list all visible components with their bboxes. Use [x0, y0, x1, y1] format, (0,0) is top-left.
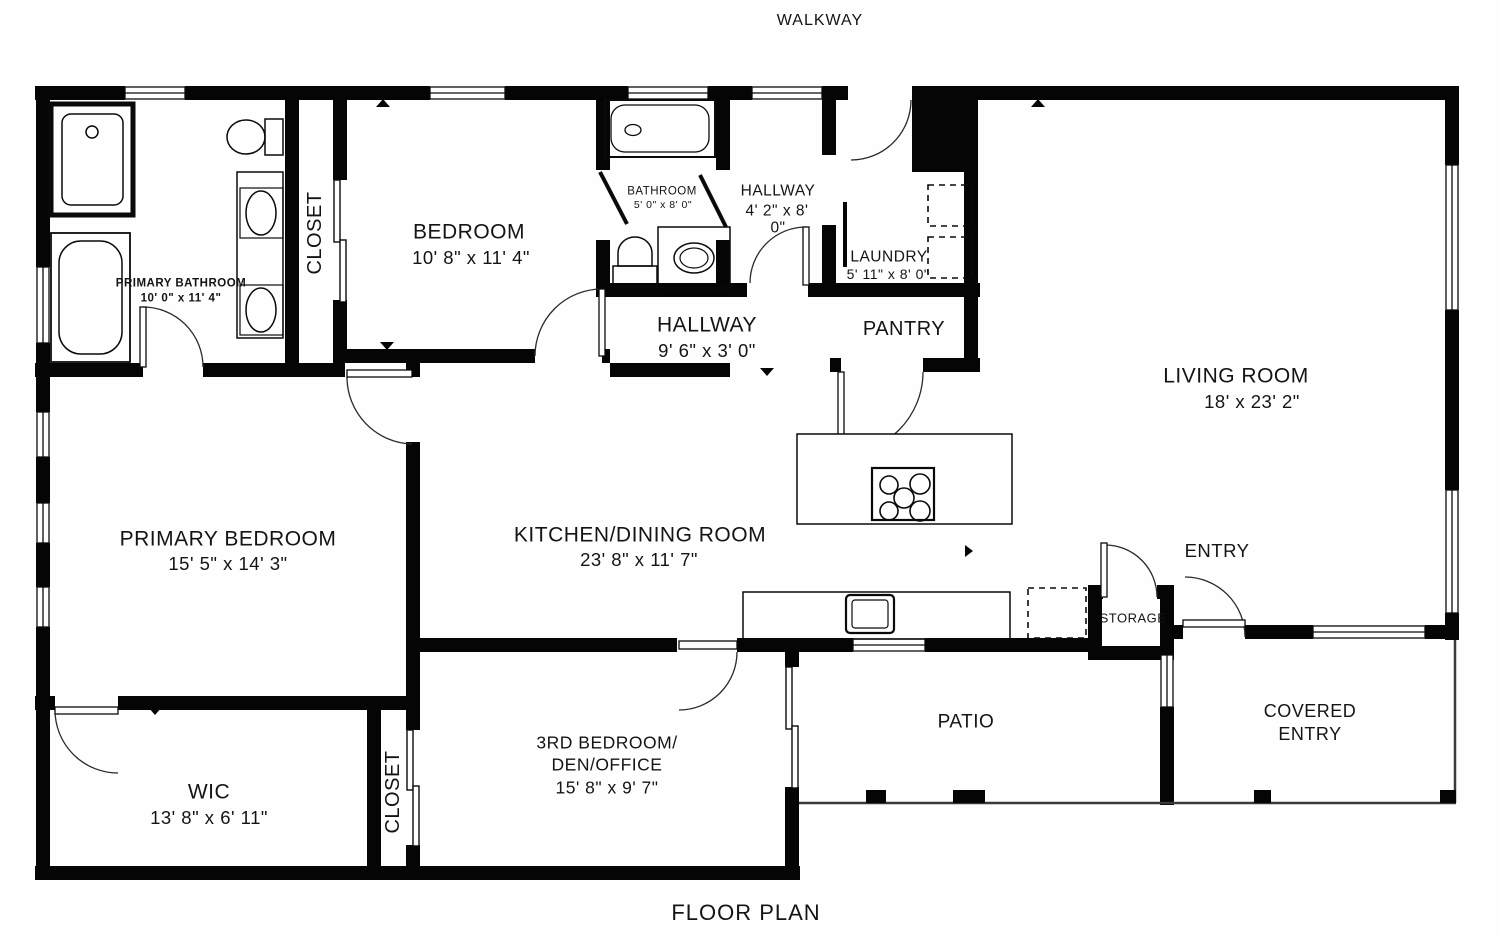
primary-bedroom-dims: 15' 5" x 14' 3": [168, 555, 287, 574]
kitchen-dining-label: KITCHEN/DINING ROOM: [514, 525, 766, 546]
primary-bedroom-label: PRIMARY BEDROOM: [120, 529, 337, 550]
double-vanity-icon: [237, 172, 283, 338]
hallway-upper-label: HALLWAY: [741, 183, 816, 199]
toilet-icon: [613, 237, 657, 287]
kitchen-dining-dims: 23' 8" x 11' 7": [580, 551, 698, 570]
patio-outline: [799, 640, 1456, 803]
door-leaves: [55, 172, 1245, 714]
storage-label: STORAGE: [1100, 612, 1167, 625]
kitchen-fixtures: [743, 434, 1086, 639]
toilet-icon: [227, 119, 283, 155]
third-bedroom-dims: 15' 8" x 9' 7": [556, 779, 659, 797]
refrigerator-icon: [1028, 588, 1086, 638]
living-room-label: LIVING ROOM: [1163, 366, 1309, 387]
primary-bathroom-label: PRIMARY BATHROOM: [116, 278, 246, 290]
covered-entry-label-line1: COVERED: [1264, 702, 1357, 720]
primary-bath-fixtures: [51, 104, 283, 362]
tub-icon: [605, 100, 715, 157]
hallway-upper-dims-line1: 4' 2" x 8': [746, 203, 809, 219]
walkway-label: WALKWAY: [777, 13, 863, 29]
hallway-label: HALLWAY: [657, 315, 757, 336]
hallway-upper-dims-line2: 0": [770, 220, 785, 236]
bathroom-label: BATHROOM: [627, 186, 697, 198]
third-bedroom-label-line2: DEN/OFFICE: [552, 756, 663, 774]
kitchen-island: [797, 434, 1012, 524]
pantry-label: PANTRY: [863, 319, 945, 339]
bedroom-dims: 10' 8" x 11' 4": [412, 249, 530, 268]
hallway-dims: 9' 6" x 3' 0": [658, 342, 756, 361]
wic-dims: 13' 8" x 6' 11": [150, 809, 268, 828]
third-bedroom-label-line1: 3RD BEDROOM/: [536, 734, 677, 752]
living-room-dims: 18' x 23' 2": [1204, 393, 1300, 412]
bedroom-label: BEDROOM: [413, 222, 525, 243]
kitchen-counter: [743, 592, 1010, 639]
bathtub-icon: [51, 233, 130, 362]
bathroom-dims: 5' 0" x 8' 0": [634, 200, 692, 211]
laundry-label: LAUNDRY: [850, 249, 927, 265]
patio-label: PATIO: [938, 713, 995, 732]
floor-plan-page: WALKWAY PRIMARY BATHROOM 10' 0" x 11' 4"…: [0, 0, 1500, 942]
laundry-dims: 5' 11" x 8' 0": [847, 267, 930, 281]
wic-label: WIC: [188, 782, 230, 803]
primary-bathroom-dims: 10' 0" x 11' 4": [141, 293, 222, 305]
covered-entry-label-line2: ENTRY: [1278, 725, 1341, 743]
closet-upper-label: CLOSET: [305, 191, 325, 274]
floor-plan-title: FLOOR PLAN: [671, 902, 820, 924]
closet-lower-label: CLOSET: [383, 750, 403, 833]
shower-icon: [51, 104, 133, 215]
entry-label: ENTRY: [1185, 542, 1250, 561]
